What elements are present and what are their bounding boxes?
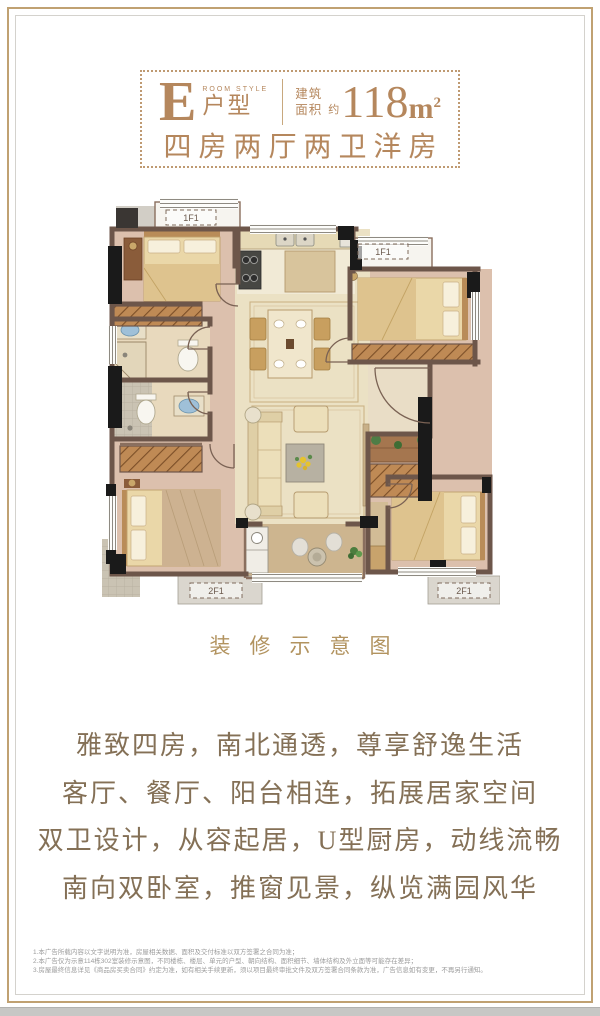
floorplan-image: 1F1 1F1 2F1 2F1 bbox=[100, 194, 500, 608]
bottom-divider-band bbox=[0, 1007, 600, 1016]
unit-type-label: 户型 bbox=[202, 93, 268, 119]
area-word-2: 面积 bbox=[295, 102, 322, 118]
header-divider bbox=[282, 79, 283, 125]
bedroom-2-furniture bbox=[349, 272, 469, 341]
ac-label-4: 2F1 bbox=[456, 586, 472, 596]
description-line-2: 客厅、餐厅、阳台相连，拓展居家空间 bbox=[0, 770, 600, 818]
ac-label-1: 1F1 bbox=[183, 213, 199, 223]
description-line-3: 双卫设计，从容起居，U型厨房，动线流畅 bbox=[0, 817, 600, 865]
area-unit: m2 bbox=[409, 88, 442, 124]
marketing-description: 雅致四房，南北通透，尊享舒逸生活 客厅、餐厅、阳台相连，拓展居家空间 双卫设计，… bbox=[0, 722, 600, 912]
ac-label-3: 2F1 bbox=[208, 586, 224, 596]
description-line-1: 雅致四房，南北通透，尊享舒逸生活 bbox=[0, 722, 600, 770]
disclaimer-line-1: 1.本广告所载内容以文字说明为准，房屋相关数据、面积及交付标准以双方签署之合同为… bbox=[33, 948, 573, 957]
area-word-1: 建筑 bbox=[295, 86, 322, 102]
room-style-label: ROOM STYLE bbox=[202, 86, 268, 93]
unit-header-box: E ROOM STYLE 户型 建筑 面积 约 118 m2 四房两厅两卫洋房 bbox=[140, 70, 460, 168]
description-line-4: 南向双卧室，推窗见景，纵览满园风华 bbox=[0, 865, 600, 913]
disclaimer-line-3: 3.房屋最终信息详见《商品房买卖合同》约定为准，如有相关手续更新，须以项目最终审… bbox=[33, 966, 573, 975]
plan-caption: 装修示意图 bbox=[0, 630, 600, 660]
unit-subtitle: 四房两厅两卫洋房 bbox=[156, 130, 443, 166]
ac-label-2: 1F1 bbox=[375, 247, 391, 257]
area-value: 118 bbox=[341, 79, 408, 125]
unit-letter: E bbox=[159, 77, 196, 127]
disclaimer-line-2: 2.本广告仅为示意114栋302室装修示意图，不同楼栋、楼层、单元的户型、朝向结… bbox=[33, 957, 573, 966]
unit-header-row: E ROOM STYLE 户型 建筑 面积 约 118 m2 bbox=[159, 74, 441, 129]
master-bedroom-furniture bbox=[122, 479, 220, 566]
approx-label: 约 bbox=[328, 101, 339, 117]
bedroom-4-furniture bbox=[392, 492, 485, 560]
disclaimer-text: 1.本广告所载内容以文字说明为准，房屋相关数据、面积及交付标准以双方签署之合同为… bbox=[33, 948, 573, 975]
